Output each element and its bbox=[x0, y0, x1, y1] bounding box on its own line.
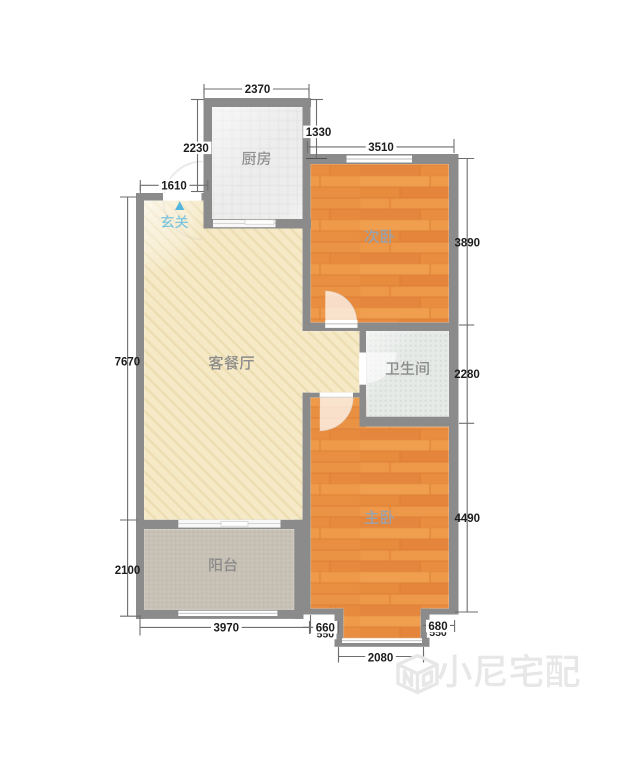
svg-text:3970: 3970 bbox=[214, 623, 240, 635]
svg-text:3510: 3510 bbox=[368, 142, 394, 154]
svg-text:2100: 2100 bbox=[115, 565, 141, 577]
svg-text:680: 680 bbox=[428, 621, 447, 633]
svg-text:4490: 4490 bbox=[455, 513, 481, 525]
svg-text:3890: 3890 bbox=[455, 238, 481, 250]
svg-text:2370: 2370 bbox=[245, 84, 271, 96]
svg-text:7670: 7670 bbox=[115, 357, 141, 369]
svg-text:660: 660 bbox=[316, 622, 335, 634]
svg-text:2280: 2280 bbox=[454, 369, 480, 381]
svg-text:2080: 2080 bbox=[368, 652, 394, 664]
svg-text:2230: 2230 bbox=[183, 143, 209, 155]
svg-text:1610: 1610 bbox=[161, 180, 187, 192]
svg-text:1330: 1330 bbox=[306, 127, 332, 139]
